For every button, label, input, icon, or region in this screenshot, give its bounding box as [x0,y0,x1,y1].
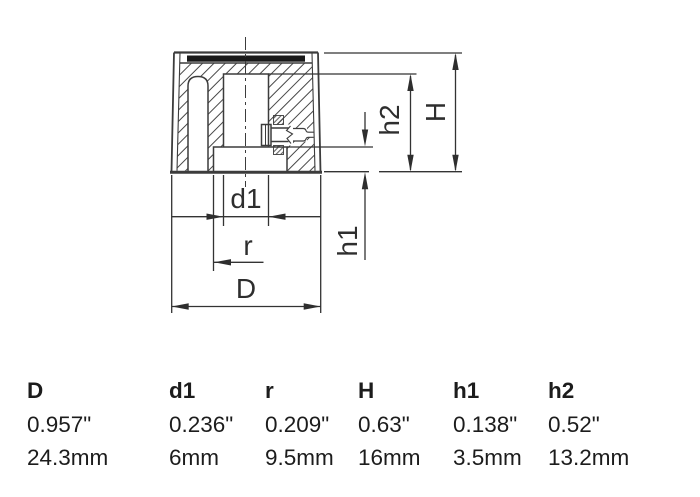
spec-header: D [27,374,108,408]
spec-value-inches: 0.63" [358,408,421,442]
spec-value-inches: 0.236" [169,408,233,442]
dim-label-r: r [243,230,252,261]
knob-cross-section [170,37,322,187]
spec-header: h1 [453,374,522,408]
spec-header: r [265,374,334,408]
knob-dimension-sheet: d1 r D h1 h2 H D 0.957" 24.3mm d1 0.236"… [0,0,700,497]
spec-header: h2 [548,374,629,408]
spec-value-mm: 6mm [169,441,233,475]
dim-label-h2: h2 [374,104,405,135]
spec-col-h2: h2 0.52" 13.2mm [548,374,629,475]
spec-value-inches: 0.209" [265,408,334,442]
spec-col-r: r 0.209" 9.5mm [265,374,334,475]
spec-col-d1: d1 0.236" 6mm [169,374,233,475]
spec-col-D: D 0.957" 24.3mm [27,374,108,475]
dim-label-d1: d1 [230,183,261,214]
dimension-labels: d1 r D h1 h2 H [230,102,451,304]
spec-value-inches: 0.52" [548,408,629,442]
spec-value-mm: 9.5mm [265,441,334,475]
dim-label-H: H [420,102,451,122]
thread-mark-bottom [274,146,284,155]
spec-value-mm: 3.5mm [453,441,522,475]
spec-value-inches: 0.138" [453,408,522,442]
spec-header: d1 [169,374,233,408]
spec-value-mm: 24.3mm [27,441,108,475]
spec-value-mm: 16mm [358,441,421,475]
spec-col-h1: h1 0.138" 3.5mm [453,374,522,475]
spec-value-mm: 13.2mm [548,441,629,475]
thread-mark-top [274,116,284,125]
spec-header: H [358,374,421,408]
spec-value-inches: 0.957" [27,408,108,442]
dim-label-D: D [236,273,256,304]
dimension-spec-table: D 0.957" 24.3mm d1 0.236" 6mm r 0.209" 9… [0,374,700,484]
dim-label-h1: h1 [332,225,363,256]
spec-col-H: H 0.63" 16mm [358,374,421,475]
collet-slot [188,77,208,172]
